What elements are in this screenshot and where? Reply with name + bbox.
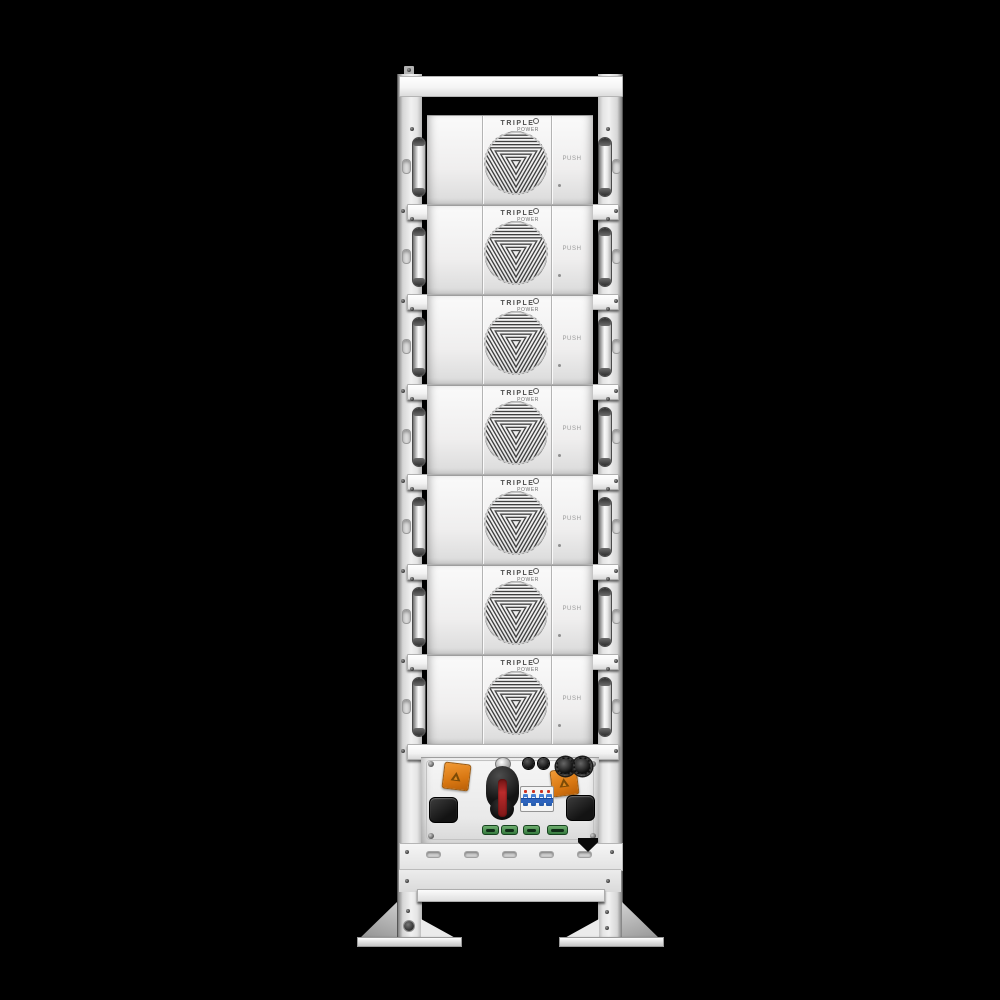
push-button-indicator	[558, 634, 561, 637]
vent-slot	[426, 851, 441, 858]
fan-grille-icon	[483, 580, 549, 646]
module-handle-right	[598, 497, 612, 557]
breaker-indicator	[547, 790, 550, 793]
screw	[605, 926, 609, 930]
round-knob-connector	[523, 758, 534, 769]
module-handle-left	[412, 587, 426, 647]
warning-triangle-icon	[561, 782, 565, 786]
battery-module: TRIPLE POWER PUSH	[397, 115, 622, 219]
post-slot-left	[402, 519, 411, 534]
logo-mark-icon	[533, 388, 539, 394]
black-port-cover-left	[429, 797, 458, 823]
warning-triangle-icon	[453, 776, 457, 780]
foot-base-left	[357, 937, 462, 947]
module-handle-right	[598, 137, 612, 197]
post-slot-left	[402, 159, 411, 174]
module-handle-left	[412, 137, 426, 197]
battery-module-faceplate: TRIPLE POWER PUSH	[427, 295, 593, 385]
screw	[410, 397, 414, 401]
post-slot-right	[612, 699, 621, 714]
control-unit	[397, 757, 622, 843]
module-handle-right	[598, 677, 612, 737]
post-slot-left	[402, 249, 411, 264]
screw	[410, 577, 414, 581]
foot-gusset-left	[358, 902, 397, 940]
battery-module-faceplate: TRIPLE POWER PUSH	[427, 475, 593, 565]
battery-module: TRIPLE POWER PUSH	[397, 565, 622, 669]
screw	[410, 307, 414, 311]
push-button-label: PUSH	[551, 246, 593, 252]
push-button-indicator	[558, 454, 561, 457]
post-slot-right	[612, 609, 621, 624]
screw	[606, 217, 610, 221]
post-slot-right	[612, 339, 621, 354]
screw	[407, 68, 411, 72]
breaker-indicator	[540, 790, 543, 793]
push-button-indicator	[558, 724, 561, 727]
push-button-label: PUSH	[551, 696, 593, 702]
fan-grille-icon	[483, 670, 549, 736]
battery-module-faceplate: TRIPLE POWER PUSH	[427, 115, 593, 205]
battery-module: TRIPLE POWER PUSH	[397, 205, 622, 309]
bottom-crossbar	[417, 889, 605, 902]
post-slot-right	[612, 429, 621, 444]
module-handle-right	[598, 227, 612, 287]
breaker-indicator	[524, 790, 527, 793]
vent-slot	[577, 851, 592, 858]
logo-mark-icon	[533, 298, 539, 304]
battery-module-faceplate: TRIPLE POWER PUSH	[427, 205, 593, 295]
module-handle-right	[598, 407, 612, 467]
push-button-label: PUSH	[551, 426, 593, 432]
battery-module-faceplate: TRIPLE POWER PUSH	[427, 565, 593, 655]
post-slot-left	[402, 429, 411, 444]
screw	[610, 850, 614, 854]
post-slot-right	[612, 249, 621, 264]
breaker-indicator	[532, 790, 535, 793]
vent-slot	[464, 851, 479, 858]
orange-safety-connector-left	[441, 761, 471, 791]
push-button-label: PUSH	[551, 516, 593, 522]
foot-gusset-right	[622, 902, 661, 940]
logo-mark-icon	[533, 208, 539, 214]
leg-hole	[404, 921, 414, 931]
fan-grille-icon	[483, 310, 549, 376]
screw	[605, 910, 609, 914]
post-slot-left	[402, 339, 411, 354]
green-terminal-connector	[547, 825, 568, 835]
logo-mark-icon	[533, 658, 539, 664]
push-button-label: PUSH	[551, 606, 593, 612]
battery-module: TRIPLE POWER PUSH	[397, 295, 622, 399]
screw	[410, 127, 414, 131]
push-button-label: PUSH	[551, 156, 593, 162]
module-handle-left	[412, 497, 426, 557]
corner-screw	[428, 833, 434, 839]
top-crossbar	[399, 76, 623, 97]
screw	[606, 879, 610, 883]
post-slot-left	[402, 609, 411, 624]
push-button-indicator	[558, 544, 561, 547]
rotary-switch-stripe	[498, 779, 507, 817]
fan-grille-icon	[483, 220, 549, 286]
screw	[405, 879, 409, 883]
post-slot-right	[612, 519, 621, 534]
top-opening-shadow	[421, 94, 599, 116]
screw	[410, 217, 414, 221]
screw	[410, 487, 414, 491]
green-terminal-connector	[523, 825, 540, 835]
vent-slot	[502, 851, 517, 858]
fan-grille-icon	[483, 130, 549, 196]
screw	[614, 749, 618, 753]
screw	[606, 487, 610, 491]
green-terminal-connector	[482, 825, 499, 835]
screw	[405, 850, 409, 854]
module-handle-left	[412, 407, 426, 467]
screw	[606, 307, 610, 311]
black-port-cover-right	[566, 795, 595, 821]
module-handle-right	[598, 317, 612, 377]
vent-slot	[539, 851, 554, 858]
corner-screw	[428, 761, 434, 767]
battery-module-faceplate: TRIPLE POWER PUSH	[427, 385, 593, 475]
module-handle-right	[598, 587, 612, 647]
fan-grille-icon	[483, 400, 549, 466]
push-button-indicator	[558, 184, 561, 187]
screw	[401, 749, 405, 753]
post-slot-right	[612, 159, 621, 174]
battery-module: TRIPLE POWER PUSH	[397, 475, 622, 579]
battery-module: TRIPLE POWER PUSH	[397, 655, 622, 759]
logo-mark-icon	[533, 118, 539, 124]
screw	[406, 909, 410, 913]
battery-module: TRIPLE POWER PUSH	[397, 385, 622, 489]
circuit-breaker	[520, 786, 554, 812]
screw	[410, 667, 414, 671]
screw	[606, 397, 610, 401]
module-handle-left	[412, 317, 426, 377]
logo-mark-icon	[533, 568, 539, 574]
round-power-connector	[573, 757, 592, 776]
foot-base-right	[559, 937, 664, 947]
fan-grille-icon	[483, 490, 549, 556]
push-button-indicator	[558, 364, 561, 367]
screw	[606, 667, 610, 671]
product-photo-battery-tower: TRIPLE POWER PUSH	[0, 0, 1000, 1000]
battery-module-faceplate: TRIPLE POWER PUSH	[427, 655, 593, 745]
screw	[606, 127, 610, 131]
green-terminal-connector	[501, 825, 518, 835]
push-button-indicator	[558, 274, 561, 277]
logo-mark-icon	[533, 478, 539, 484]
breaker-tie-bar	[521, 798, 553, 803]
round-knob-connector	[538, 758, 549, 769]
post-slot-left	[402, 699, 411, 714]
module-handle-left	[412, 227, 426, 287]
screw	[606, 577, 610, 581]
module-handle-left	[412, 677, 426, 737]
push-button-label: PUSH	[551, 336, 593, 342]
